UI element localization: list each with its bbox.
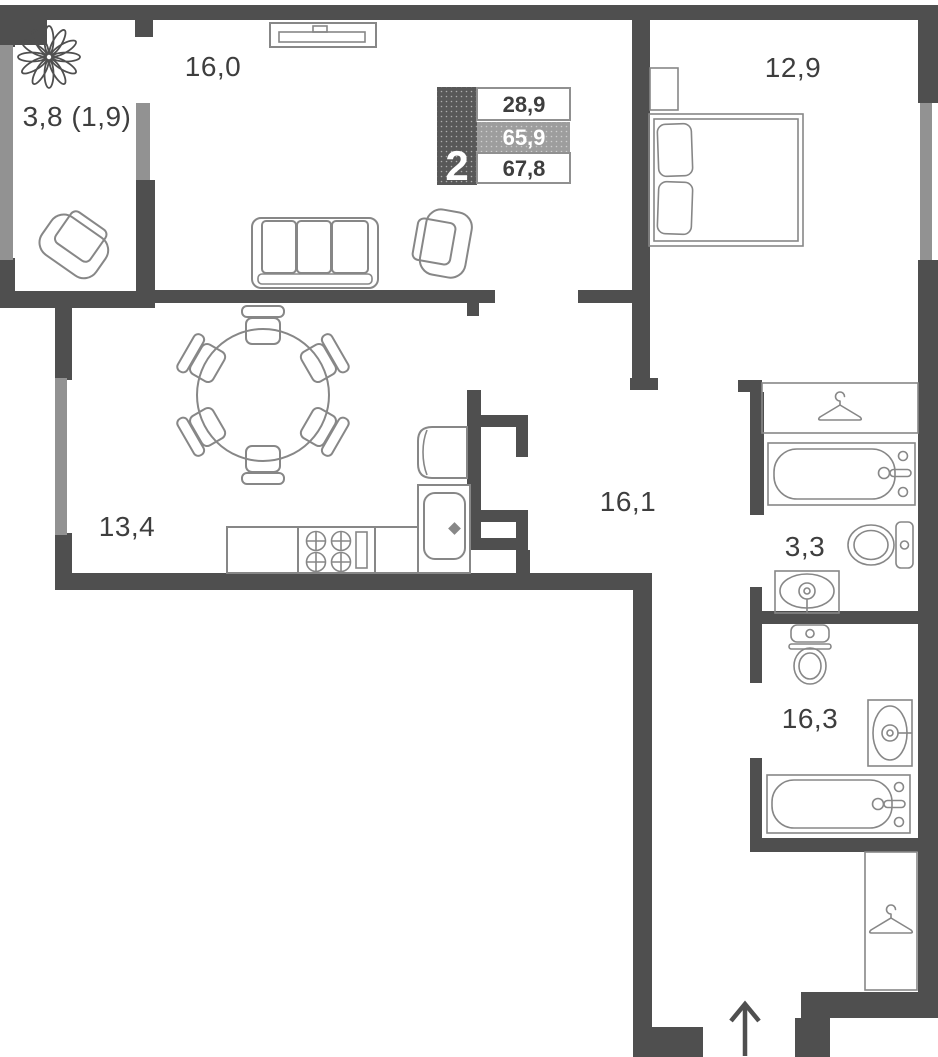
hanger-icon — [870, 905, 913, 933]
wall-loggia-divider-stub — [135, 20, 153, 37]
wall-bath-stub — [738, 380, 762, 392]
bathroom-fixtures — [762, 383, 918, 613]
room-label-living: 16,0 — [185, 51, 242, 82]
bathtub — [768, 443, 915, 505]
washbasin-2 — [868, 700, 912, 766]
kitchen-furniture — [175, 306, 470, 573]
wall-bottom-left-corner — [633, 1027, 703, 1057]
kitchen-sink — [418, 485, 470, 573]
wall-kitchen-east-lower — [516, 550, 530, 573]
bed — [649, 114, 803, 246]
wall-bedroom-divider-foot — [630, 378, 658, 390]
wall-living-bottom-right — [578, 290, 633, 303]
bedroom-furniture — [649, 68, 803, 246]
wall-bottom-right — [801, 992, 938, 1018]
room-label-kitchen: 13,4 — [99, 511, 156, 542]
hanger-icon — [819, 392, 862, 420]
window-kitchen — [55, 378, 67, 535]
area-legend: 2 28,9 65,9 67,8 — [437, 87, 570, 189]
legend-apartment-area: 65,9 — [503, 125, 546, 150]
room-label-shower: 16,3 — [782, 703, 839, 734]
room-label-bedroom: 12,9 — [765, 52, 822, 83]
pillow — [657, 123, 693, 176]
legend-total-area: 67,8 — [503, 156, 546, 181]
dining-chair — [242, 306, 284, 344]
bathtub-2 — [767, 775, 910, 833]
toilet-side — [848, 522, 913, 568]
wall-loggia-left-top — [0, 5, 15, 47]
dining-chair — [297, 402, 351, 457]
wall-kitchen-bottom — [70, 573, 652, 590]
loggia-armchair — [34, 202, 119, 284]
wall-bath-bottom — [750, 838, 918, 852]
room-label-bathroom: 3,3 — [785, 531, 825, 562]
floor-plan: 2 28,9 65,9 67,8 — [0, 0, 938, 1057]
entrance-arrow-icon — [731, 1004, 759, 1056]
tv-unit — [270, 23, 376, 47]
legend-living-area: 28,9 — [503, 92, 546, 117]
wall-kitchen-left-bottom — [55, 533, 72, 590]
pillow — [657, 181, 693, 234]
wall-duct2-bottom — [481, 538, 528, 550]
legend-rooms-count: 2 — [445, 142, 468, 189]
wall-duct2-right — [516, 522, 528, 538]
fridge — [418, 427, 467, 478]
wardrobe-bottom — [865, 852, 917, 990]
living-armchair — [410, 206, 475, 280]
wall-corridor-left — [633, 573, 652, 1027]
wall-living-bottom-stub — [467, 303, 479, 316]
wall-loggia-bottom — [0, 291, 155, 308]
window-bedroom — [920, 103, 932, 260]
stove — [298, 527, 375, 573]
wardrobe-top — [762, 383, 918, 433]
wall-duct2-top — [481, 510, 528, 522]
loggia-furniture — [18, 26, 119, 284]
room-label-loggia: 3,8 (1,9) — [23, 101, 132, 132]
wall-loggia-divider — [136, 180, 155, 291]
wall-right-top — [918, 5, 938, 103]
wall-bedroom-divider — [632, 20, 650, 378]
dining-chair — [242, 446, 284, 484]
window-loggia-left — [0, 45, 13, 260]
wall-bath-west-b — [750, 587, 762, 683]
wall-entry-right-block — [795, 1018, 830, 1057]
wall-kitchen-left-top — [55, 308, 72, 380]
wall-right-bottom — [918, 260, 938, 1018]
wall-duct1-right — [516, 427, 528, 457]
wall-duct1-top — [481, 415, 528, 427]
wall-top — [0, 5, 938, 20]
wall-living-bottom-left — [155, 290, 495, 303]
toilet-top — [789, 625, 831, 684]
wall-bath-west-c — [750, 758, 762, 840]
washbasin — [775, 571, 839, 613]
dining-chair — [297, 332, 351, 387]
window-loggia-divider — [136, 103, 150, 180]
room-label-hallway: 16,1 — [600, 486, 657, 517]
sofa — [252, 218, 378, 288]
nightstand — [650, 68, 678, 110]
dining-chair — [175, 332, 229, 387]
dining-chair — [175, 402, 229, 457]
